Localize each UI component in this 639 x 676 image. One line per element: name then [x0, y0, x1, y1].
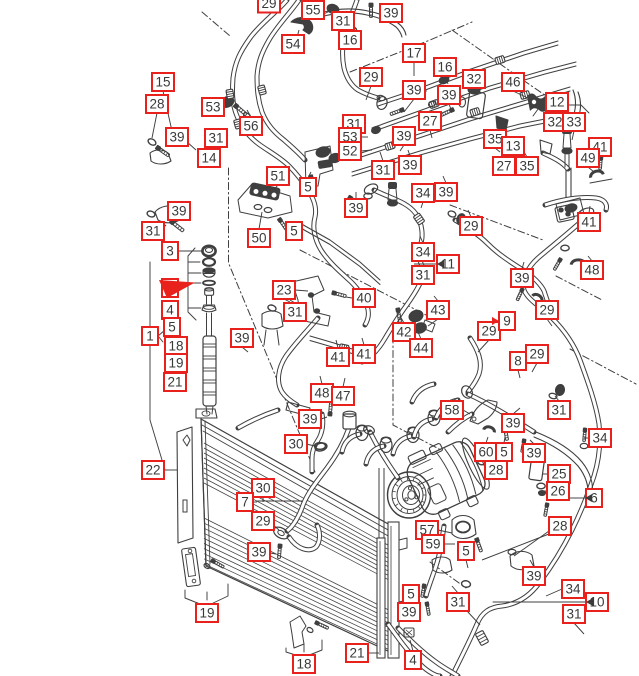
- svg-text:40: 40: [356, 291, 371, 306]
- svg-text:21: 21: [167, 375, 182, 390]
- svg-text:5: 5: [500, 445, 508, 460]
- svg-text:5: 5: [168, 320, 176, 335]
- svg-text:5: 5: [407, 587, 415, 602]
- svg-text:4: 4: [409, 653, 417, 668]
- svg-text:48: 48: [584, 263, 599, 278]
- svg-text:34: 34: [415, 186, 431, 201]
- svg-text:48: 48: [314, 386, 329, 401]
- svg-text:19: 19: [199, 606, 214, 621]
- svg-text:4: 4: [166, 303, 174, 318]
- svg-text:18: 18: [296, 657, 311, 672]
- svg-text:41: 41: [330, 350, 345, 365]
- svg-text:5: 5: [290, 224, 298, 239]
- svg-text:18: 18: [168, 339, 183, 354]
- svg-text:53: 53: [205, 100, 220, 115]
- svg-text:34: 34: [565, 582, 581, 597]
- svg-text:56: 56: [243, 119, 258, 134]
- svg-text:55: 55: [305, 3, 320, 18]
- svg-text:39: 39: [234, 331, 249, 346]
- svg-text:54: 54: [285, 37, 301, 52]
- svg-text:29: 29: [481, 324, 496, 339]
- svg-text:46: 46: [505, 75, 520, 90]
- svg-text:28: 28: [552, 519, 567, 534]
- svg-text:30: 30: [288, 437, 303, 452]
- svg-text:29: 29: [363, 70, 378, 85]
- svg-text:39: 39: [169, 130, 184, 145]
- svg-text:5: 5: [462, 544, 470, 559]
- svg-text:41: 41: [581, 215, 596, 230]
- svg-text:31: 31: [287, 305, 302, 320]
- svg-text:41: 41: [356, 347, 371, 362]
- svg-text:31: 31: [375, 163, 390, 178]
- svg-text:21: 21: [349, 646, 364, 661]
- svg-text:12: 12: [549, 95, 564, 110]
- svg-text:35: 35: [519, 159, 534, 174]
- svg-text:39: 39: [441, 88, 456, 103]
- svg-text:31: 31: [415, 268, 430, 283]
- svg-text:39: 39: [406, 83, 421, 98]
- svg-text:3: 3: [166, 244, 174, 259]
- svg-text:34: 34: [592, 431, 608, 446]
- svg-text:16: 16: [342, 33, 357, 48]
- svg-text:8: 8: [514, 354, 522, 369]
- svg-text:34: 34: [415, 245, 431, 260]
- svg-text:39: 39: [438, 185, 453, 200]
- svg-text:29: 29: [255, 514, 270, 529]
- svg-text:39: 39: [171, 204, 186, 219]
- svg-text:31: 31: [335, 14, 350, 29]
- svg-text:29: 29: [539, 303, 554, 318]
- svg-text:49: 49: [580, 151, 595, 166]
- svg-text:42: 42: [396, 325, 411, 340]
- svg-text:43: 43: [430, 303, 445, 318]
- svg-text:29: 29: [261, 0, 276, 11]
- svg-text:31: 31: [566, 607, 581, 622]
- svg-text:15: 15: [155, 75, 170, 90]
- svg-text:39: 39: [383, 6, 398, 21]
- svg-text:59: 59: [425, 537, 440, 552]
- svg-text:26: 26: [550, 484, 565, 499]
- svg-text:14: 14: [201, 151, 217, 166]
- svg-text:27: 27: [422, 114, 437, 129]
- svg-text:51: 51: [270, 169, 285, 184]
- svg-text:31: 31: [145, 224, 160, 239]
- svg-text:13: 13: [505, 139, 520, 154]
- svg-text:39: 39: [251, 545, 266, 560]
- svg-text:28: 28: [488, 463, 503, 478]
- svg-text:39: 39: [302, 412, 317, 427]
- svg-text:29: 29: [463, 219, 478, 234]
- svg-text:16: 16: [437, 60, 452, 75]
- svg-text:31: 31: [551, 403, 566, 418]
- svg-text:39: 39: [514, 271, 529, 286]
- svg-text:32: 32: [547, 115, 562, 130]
- svg-text:47: 47: [335, 389, 350, 404]
- svg-text:1: 1: [146, 329, 154, 344]
- svg-text:52: 52: [342, 144, 357, 159]
- svg-text:30: 30: [255, 481, 270, 496]
- svg-text:9: 9: [503, 314, 511, 329]
- svg-text:44: 44: [413, 341, 429, 356]
- svg-text:32: 32: [466, 72, 481, 87]
- svg-text:17: 17: [406, 46, 421, 61]
- svg-text:7: 7: [241, 495, 249, 510]
- svg-text:23: 23: [276, 283, 291, 298]
- svg-text:39: 39: [396, 129, 411, 144]
- svg-text:35: 35: [487, 132, 502, 147]
- svg-text:29: 29: [529, 347, 544, 362]
- svg-text:5: 5: [304, 180, 312, 195]
- svg-text:39: 39: [505, 416, 520, 431]
- svg-text:31: 31: [450, 595, 465, 610]
- svg-text:31: 31: [208, 131, 223, 146]
- svg-text:39: 39: [526, 569, 541, 584]
- svg-text:58: 58: [444, 403, 459, 418]
- svg-text:50: 50: [251, 231, 266, 246]
- svg-text:39: 39: [402, 158, 417, 173]
- svg-text:39: 39: [348, 201, 363, 216]
- svg-text:60: 60: [478, 445, 493, 460]
- svg-text:19: 19: [168, 356, 183, 371]
- svg-text:39: 39: [526, 446, 541, 461]
- svg-text:25: 25: [551, 467, 566, 482]
- svg-text:33: 33: [566, 115, 581, 130]
- svg-text:27: 27: [496, 159, 511, 174]
- svg-text:39: 39: [401, 605, 416, 620]
- svg-text:28: 28: [149, 97, 164, 112]
- svg-text:22: 22: [145, 463, 160, 478]
